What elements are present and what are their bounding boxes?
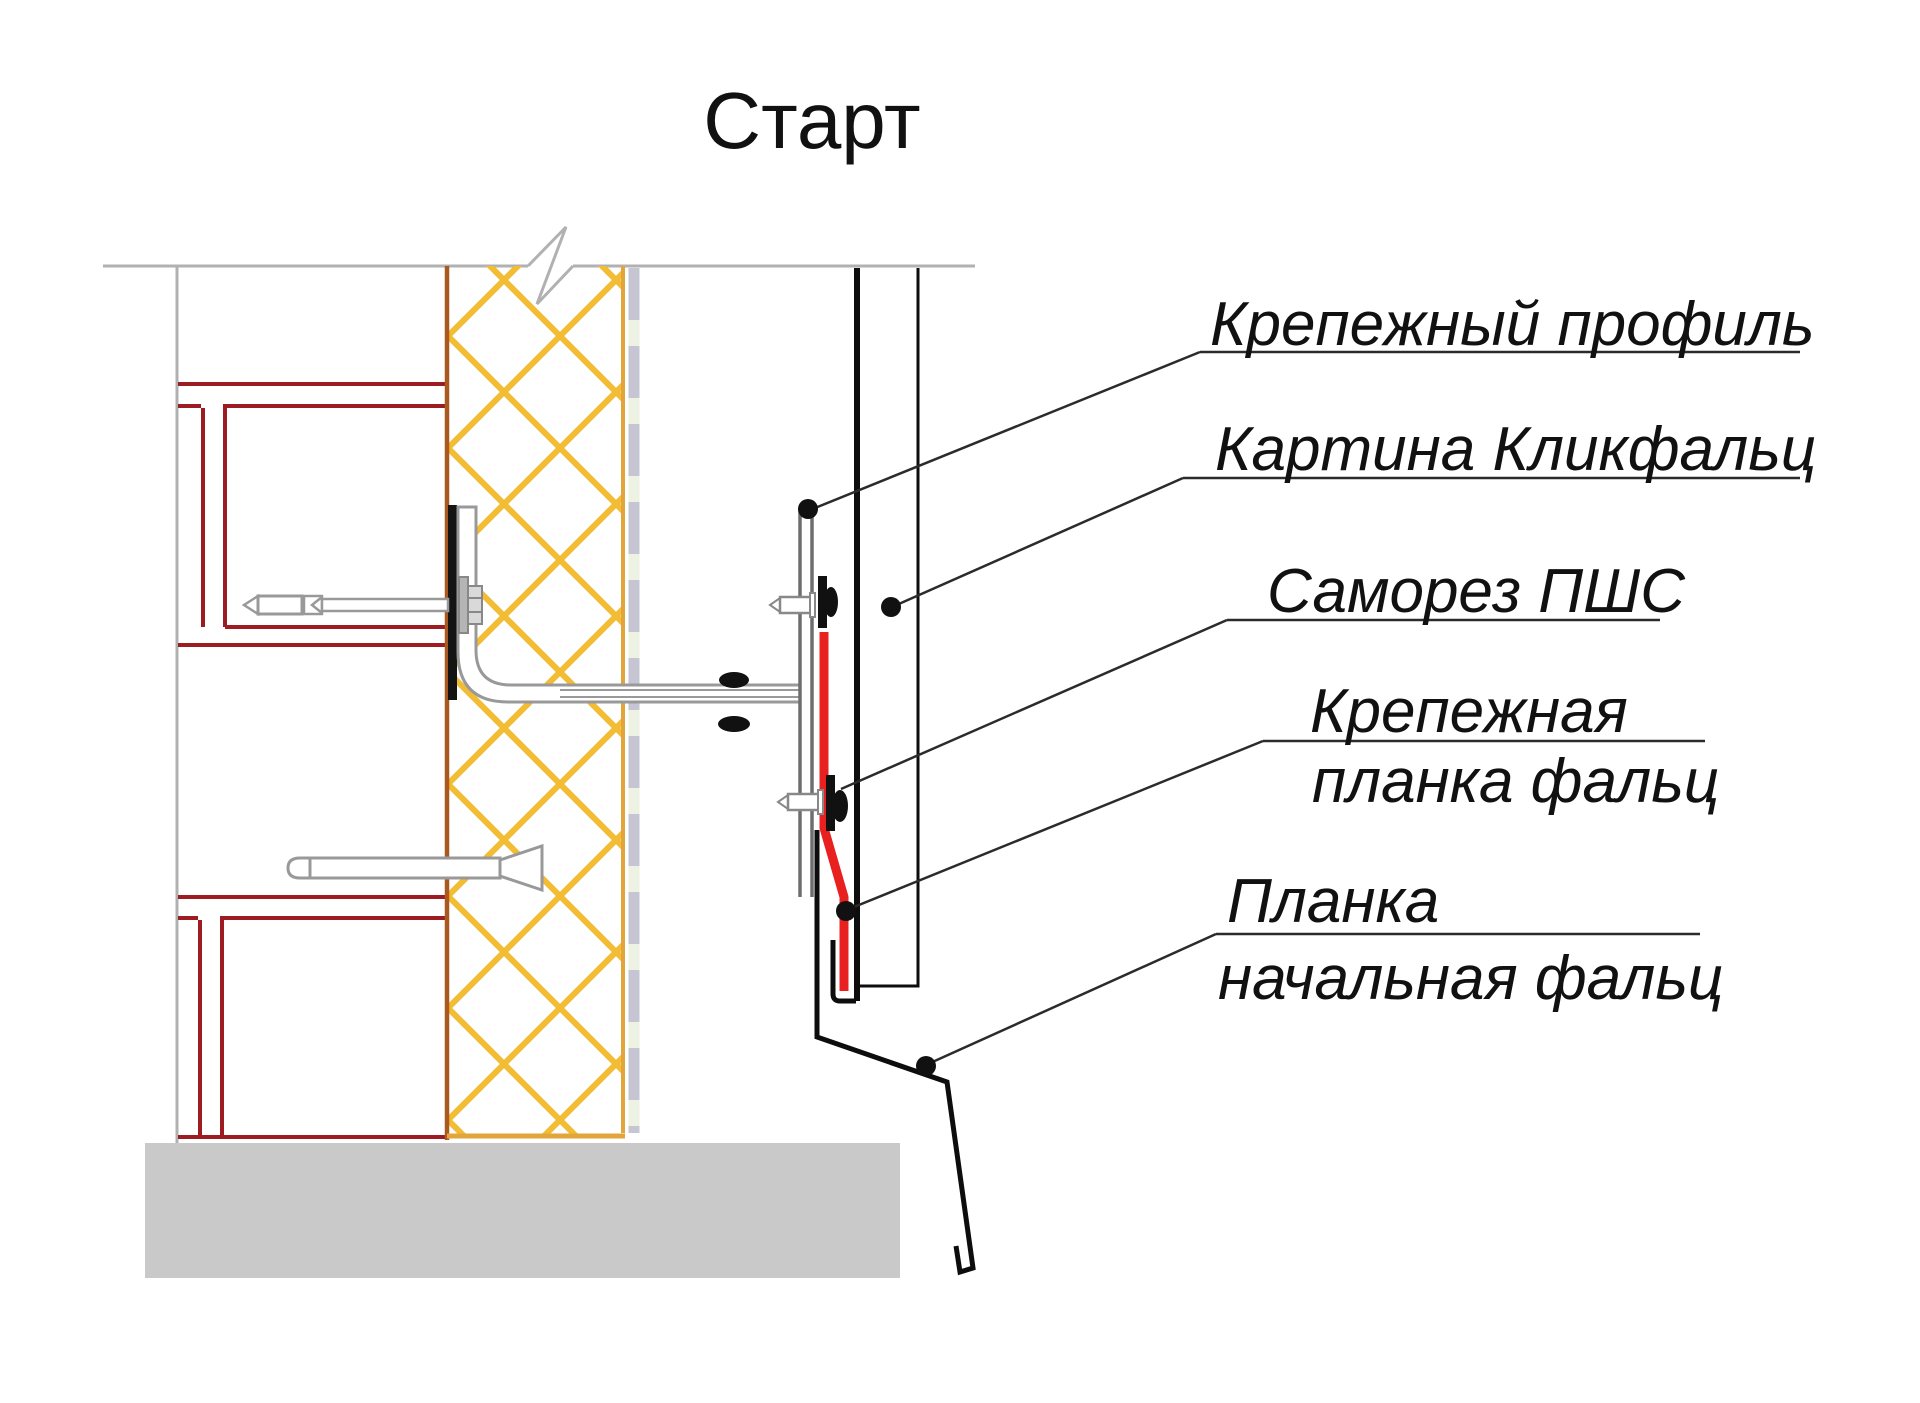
label-clickfalz-panel: Картина Кликфальц (1215, 415, 1816, 484)
label-starting-strip-line2: начальная фальц (1218, 944, 1723, 1013)
label-fastening-strip-line1: Крепежная (1310, 677, 1628, 746)
leader-fastening-profile (810, 352, 1200, 510)
panel-outer-face-line (859, 268, 918, 986)
dot-clickfalz-panel (881, 597, 901, 617)
label-fastening-strip-line2: планка фальц (1312, 747, 1719, 816)
clip-bulge (832, 790, 848, 822)
construction-detail-page: Старт (0, 0, 1920, 1403)
anchor-sleeve (258, 596, 302, 614)
leader-starting-strip (928, 934, 1216, 1064)
foundation-base (145, 1143, 900, 1278)
clip-upper (818, 576, 838, 628)
dot-fastening-profile (798, 499, 818, 519)
bracket-bolt-nut (718, 716, 750, 732)
dot-fastening-strip (836, 901, 856, 921)
bracket-thermal-pad (448, 505, 457, 700)
insulation-anchor-head (288, 858, 310, 878)
label-starting-strip-line1: Планка (1227, 867, 1439, 936)
screw-tip (770, 598, 780, 612)
clip-bulge (824, 587, 838, 617)
leader-screw (841, 620, 1227, 789)
dot-starting-strip (916, 1056, 936, 1076)
screw-washer (810, 593, 815, 617)
screw-washer (818, 790, 823, 814)
anchor-washer-plate (459, 577, 468, 633)
anchor-nut (468, 586, 482, 624)
insulation-anchor-body (310, 858, 500, 878)
leader-fastening-strip (849, 741, 1263, 909)
bracket-bolt-head (719, 672, 749, 688)
leader-clickfalz-panel (892, 478, 1183, 607)
label-screw: Саморез ПШС (1267, 557, 1686, 626)
screw-shaft (780, 597, 814, 613)
screw-shaft (788, 794, 822, 810)
page-title: Старт (703, 76, 920, 165)
fastening-profile (800, 508, 812, 897)
screw-upper (770, 593, 815, 617)
callout-labels: Крепежный профиль Картина Кликфальц Само… (1210, 290, 1816, 1013)
anchor-shaft (322, 599, 448, 611)
screw-tip (778, 795, 788, 809)
screw-lower (778, 790, 823, 814)
clip-lower (826, 775, 848, 831)
anchor-tip (244, 596, 258, 614)
label-fastening-profile: Крепежный профиль (1210, 290, 1814, 359)
construction-detail-drawing: Старт (0, 0, 1920, 1403)
wall-framing-red-lines (178, 384, 447, 1137)
